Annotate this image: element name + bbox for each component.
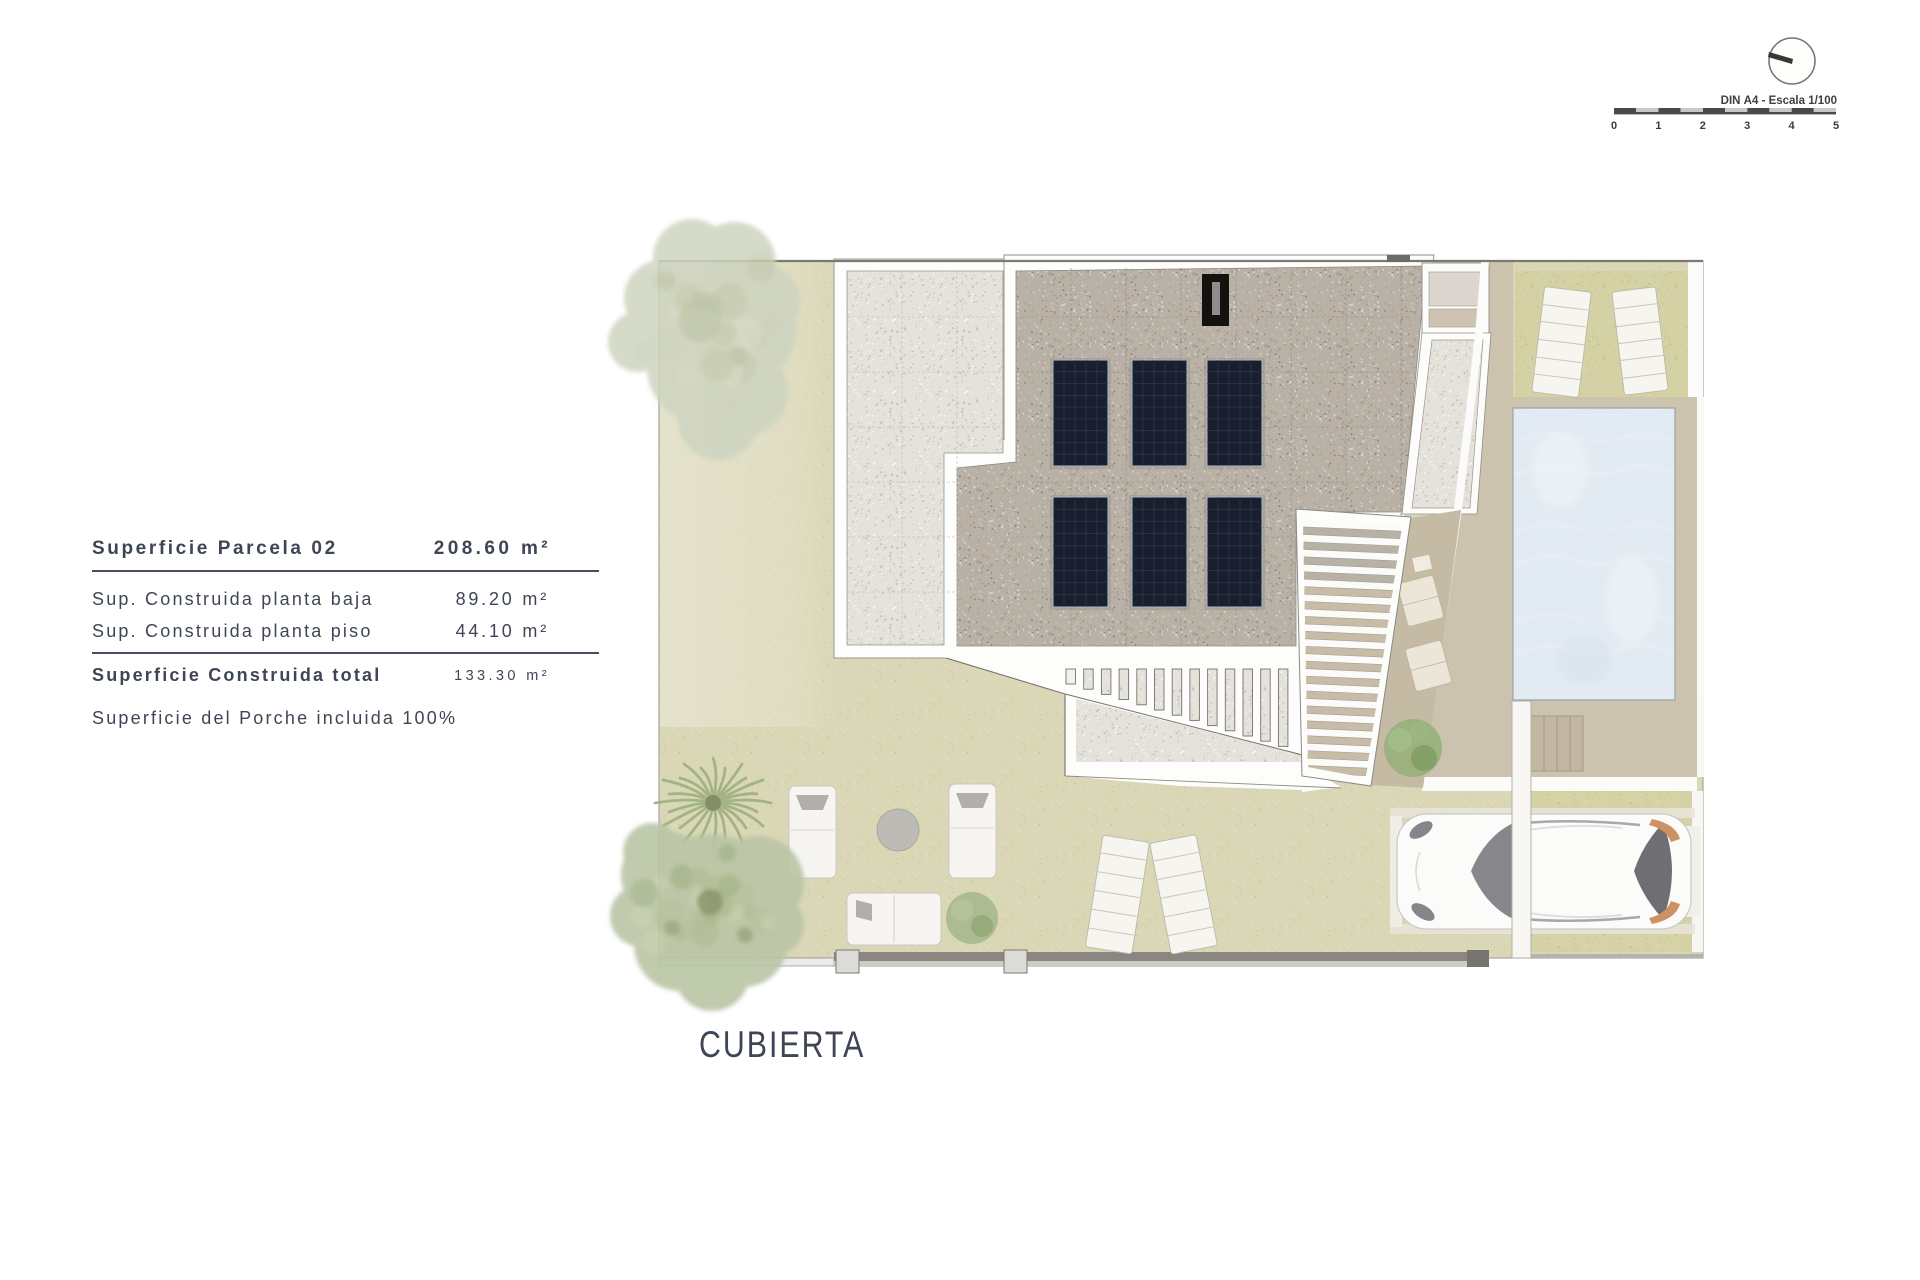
svg-text:5: 5: [1833, 120, 1839, 132]
svg-text:0: 0: [1611, 120, 1617, 132]
svg-text:4: 4: [1789, 120, 1796, 132]
svg-text:3: 3: [1744, 120, 1750, 132]
svg-text:2: 2: [1700, 120, 1706, 132]
svg-text:1: 1: [1655, 120, 1661, 132]
